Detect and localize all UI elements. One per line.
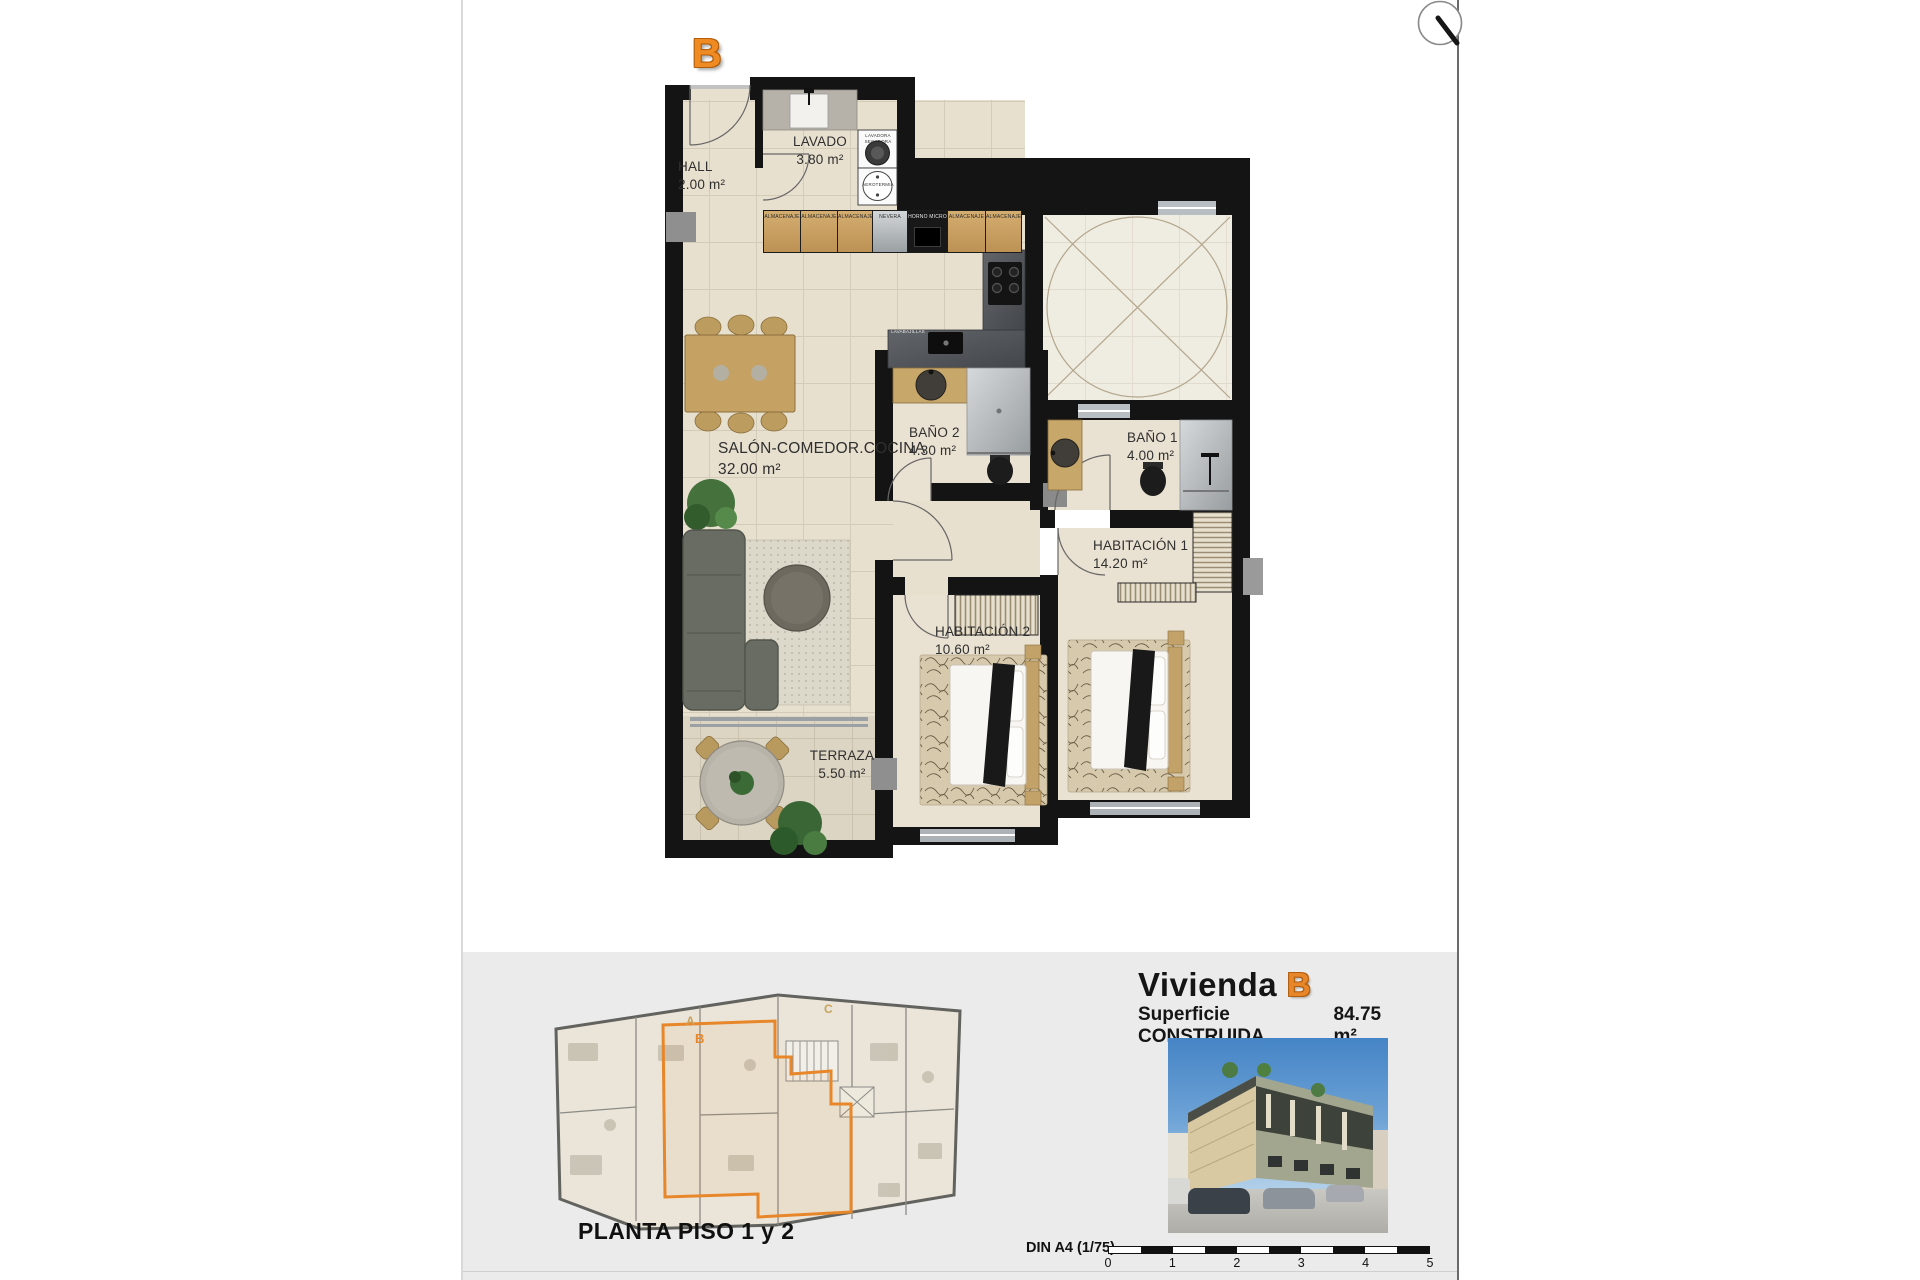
room-label-habitacion1: HABITACIÓN 114.20 m²: [1093, 537, 1188, 573]
page-edge-right: [1457, 0, 1459, 1280]
building-photo: [1168, 1038, 1388, 1233]
unit-a-letter: A: [686, 1014, 695, 1028]
fridge: NEVERA: [873, 211, 908, 252]
cabinet: ALMACENAJE: [801, 211, 838, 252]
room-label-terraza: TERRAZA5.50 m²: [797, 747, 887, 783]
van: [1168, 1178, 1190, 1204]
room-label-lavado: LAVADO3.80 m²: [780, 133, 860, 169]
cabinet: ALMACENAJE: [948, 211, 986, 252]
unit-b-letter: B: [695, 1031, 704, 1046]
cabinet: ALMACENAJE: [764, 211, 801, 252]
cabinet: ALMACENAJE: [986, 211, 1021, 252]
cabinet: ALMACENAJE: [838, 211, 873, 252]
site-plan: A B C: [540, 985, 965, 1243]
unit-title-prefix: Vivienda: [1138, 966, 1277, 1003]
washer-label: LAVADORA SECADORA: [858, 133, 898, 146]
shower: [1180, 420, 1232, 510]
car: [1188, 1188, 1250, 1214]
site-plan-caption: PLANTA PISO 1 y 2: [578, 1218, 794, 1245]
scale-ticks: 0 1 2 3 4 5: [1108, 1256, 1430, 1272]
dishwasher-label: LAVABAJILLAS: [886, 329, 930, 335]
unit-title-letter: B: [1287, 966, 1311, 1003]
oven-window: [914, 227, 941, 247]
kitchen-cabinet-row: ALMACENAJE ALMACENAJE ALMACENAJE NEVERA …: [763, 210, 1022, 253]
scale-bar: [1108, 1246, 1430, 1254]
room-label-hall: HALL2.00 m²: [678, 158, 725, 194]
car: [1326, 1185, 1364, 1202]
room-label-bano2: BAÑO 24.30 m²: [909, 424, 960, 460]
unit-letter: B: [692, 30, 722, 77]
toilet: [987, 455, 1013, 485]
aerothermal-label: AEROTERMIA: [859, 182, 897, 188]
unit-c-letter: C: [824, 1002, 833, 1016]
north-arrow-icon: [1412, 0, 1472, 52]
oven-microwave: HORNO MICRO: [908, 211, 948, 252]
unit-title: Vivienda B: [1138, 966, 1311, 1004]
car: [1263, 1188, 1315, 1209]
room-label-salon: SALÓN-COMEDOR.COCINA32.00 m²: [718, 439, 925, 481]
bed-habitacion-2: [920, 645, 1047, 805]
oven-label: HORNO MICRO: [908, 214, 947, 220]
bed-habitacion-1: [1068, 631, 1190, 792]
toilet: [1140, 462, 1166, 496]
room-label-habitacion2: HABITACIÓN 210.60 m²: [935, 623, 1030, 659]
room-label-bano1: BAÑO 14.00 m²: [1127, 429, 1178, 465]
brochure-sheet: B ALMACENAJE ALMACENAJE ALMACENAJE NEVER…: [0, 0, 1920, 1280]
dining-set: [685, 315, 795, 433]
scale-label: DIN A4 (1/75): [1026, 1240, 1115, 1256]
